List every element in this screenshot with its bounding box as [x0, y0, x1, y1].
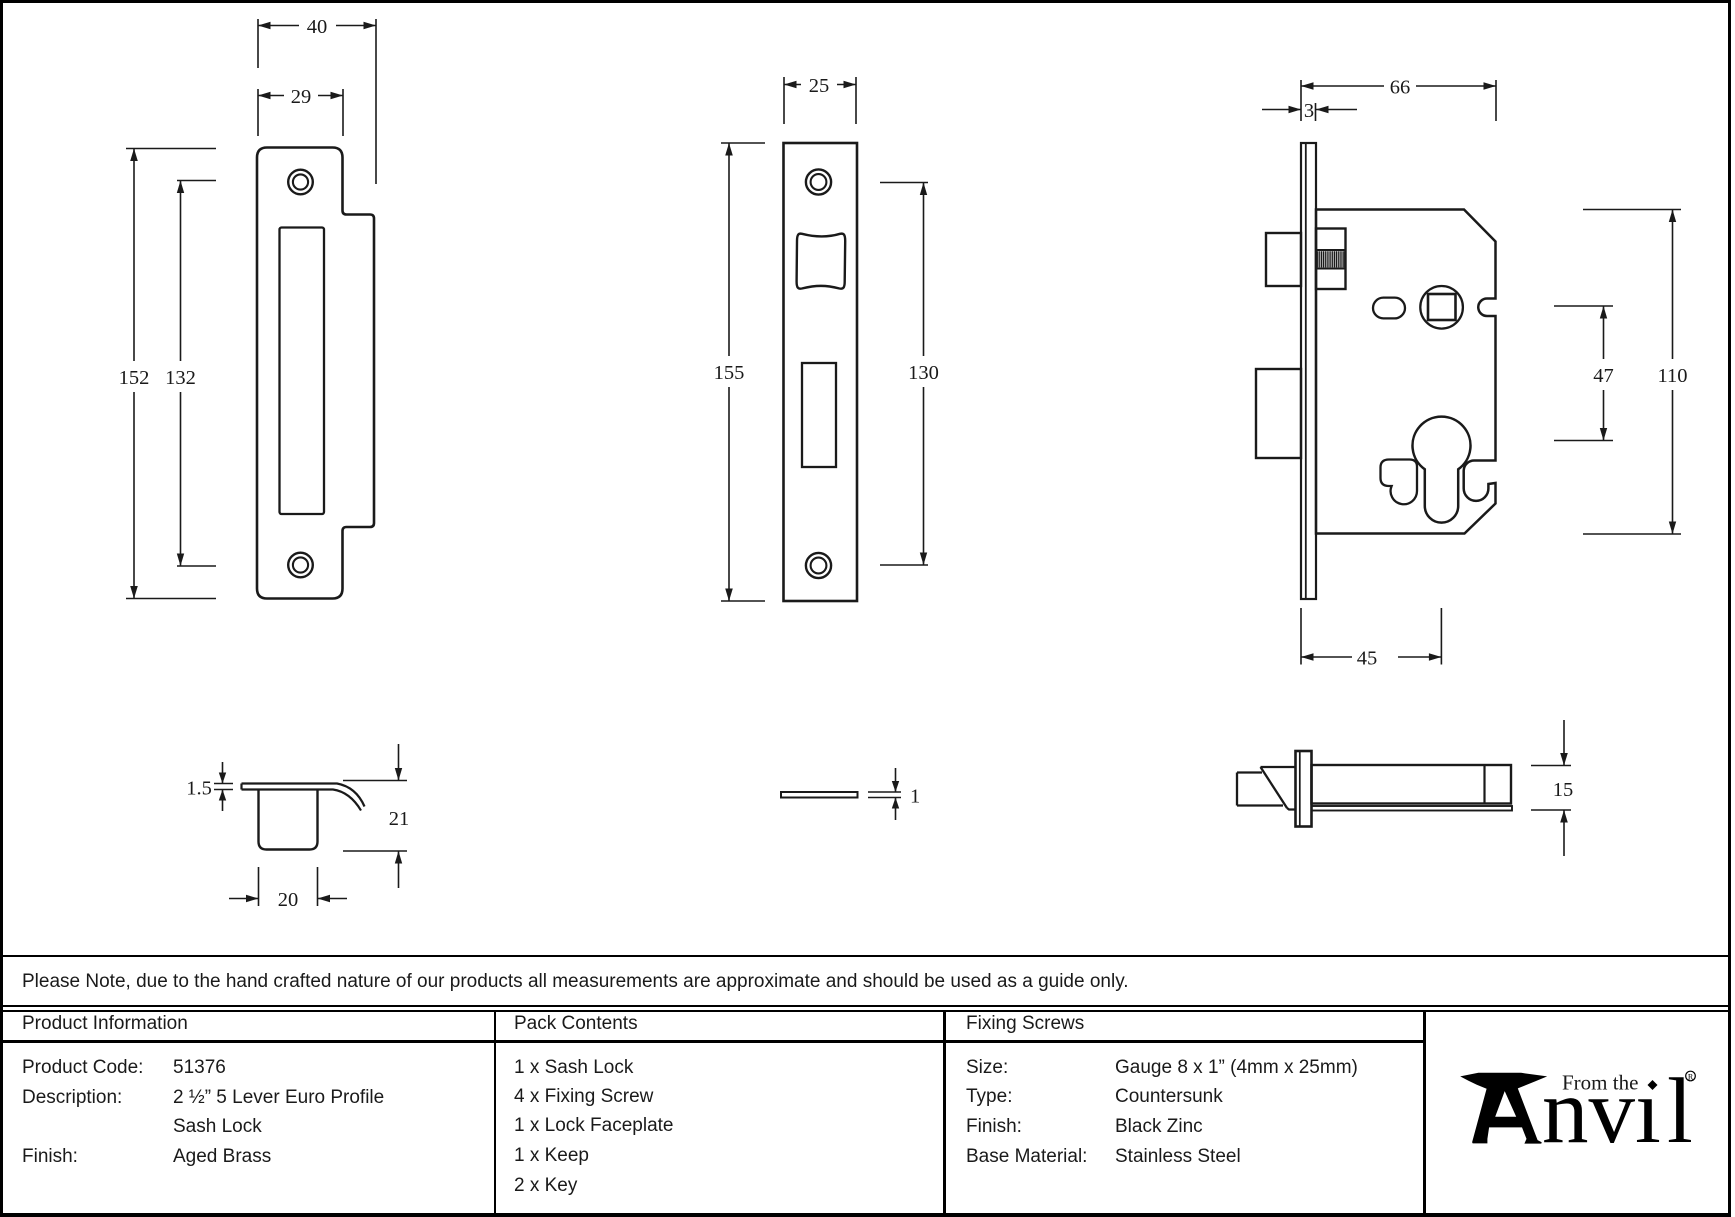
svg-text:110: 110: [1658, 365, 1688, 387]
svg-text:132: 132: [165, 367, 196, 389]
svg-text:3: 3: [1304, 100, 1314, 122]
svg-text:1.5: 1.5: [186, 778, 212, 800]
svg-text:nvı: nvı: [1542, 1060, 1661, 1163]
svg-text:29: 29: [291, 86, 312, 108]
svg-text:155: 155: [714, 362, 745, 384]
svg-text:R: R: [1688, 1073, 1694, 1082]
svg-text:40: 40: [307, 16, 328, 38]
svg-text:15: 15: [1553, 779, 1574, 801]
svg-text:66: 66: [1390, 77, 1411, 99]
svg-text:1: 1: [910, 786, 920, 808]
svg-text:25: 25: [809, 75, 830, 97]
svg-text:20: 20: [278, 889, 299, 911]
svg-text:21: 21: [389, 808, 410, 830]
svg-text:152: 152: [119, 367, 150, 389]
svg-text:130: 130: [908, 362, 939, 384]
svg-text:47: 47: [1593, 365, 1614, 387]
svg-text:45: 45: [1357, 648, 1378, 670]
